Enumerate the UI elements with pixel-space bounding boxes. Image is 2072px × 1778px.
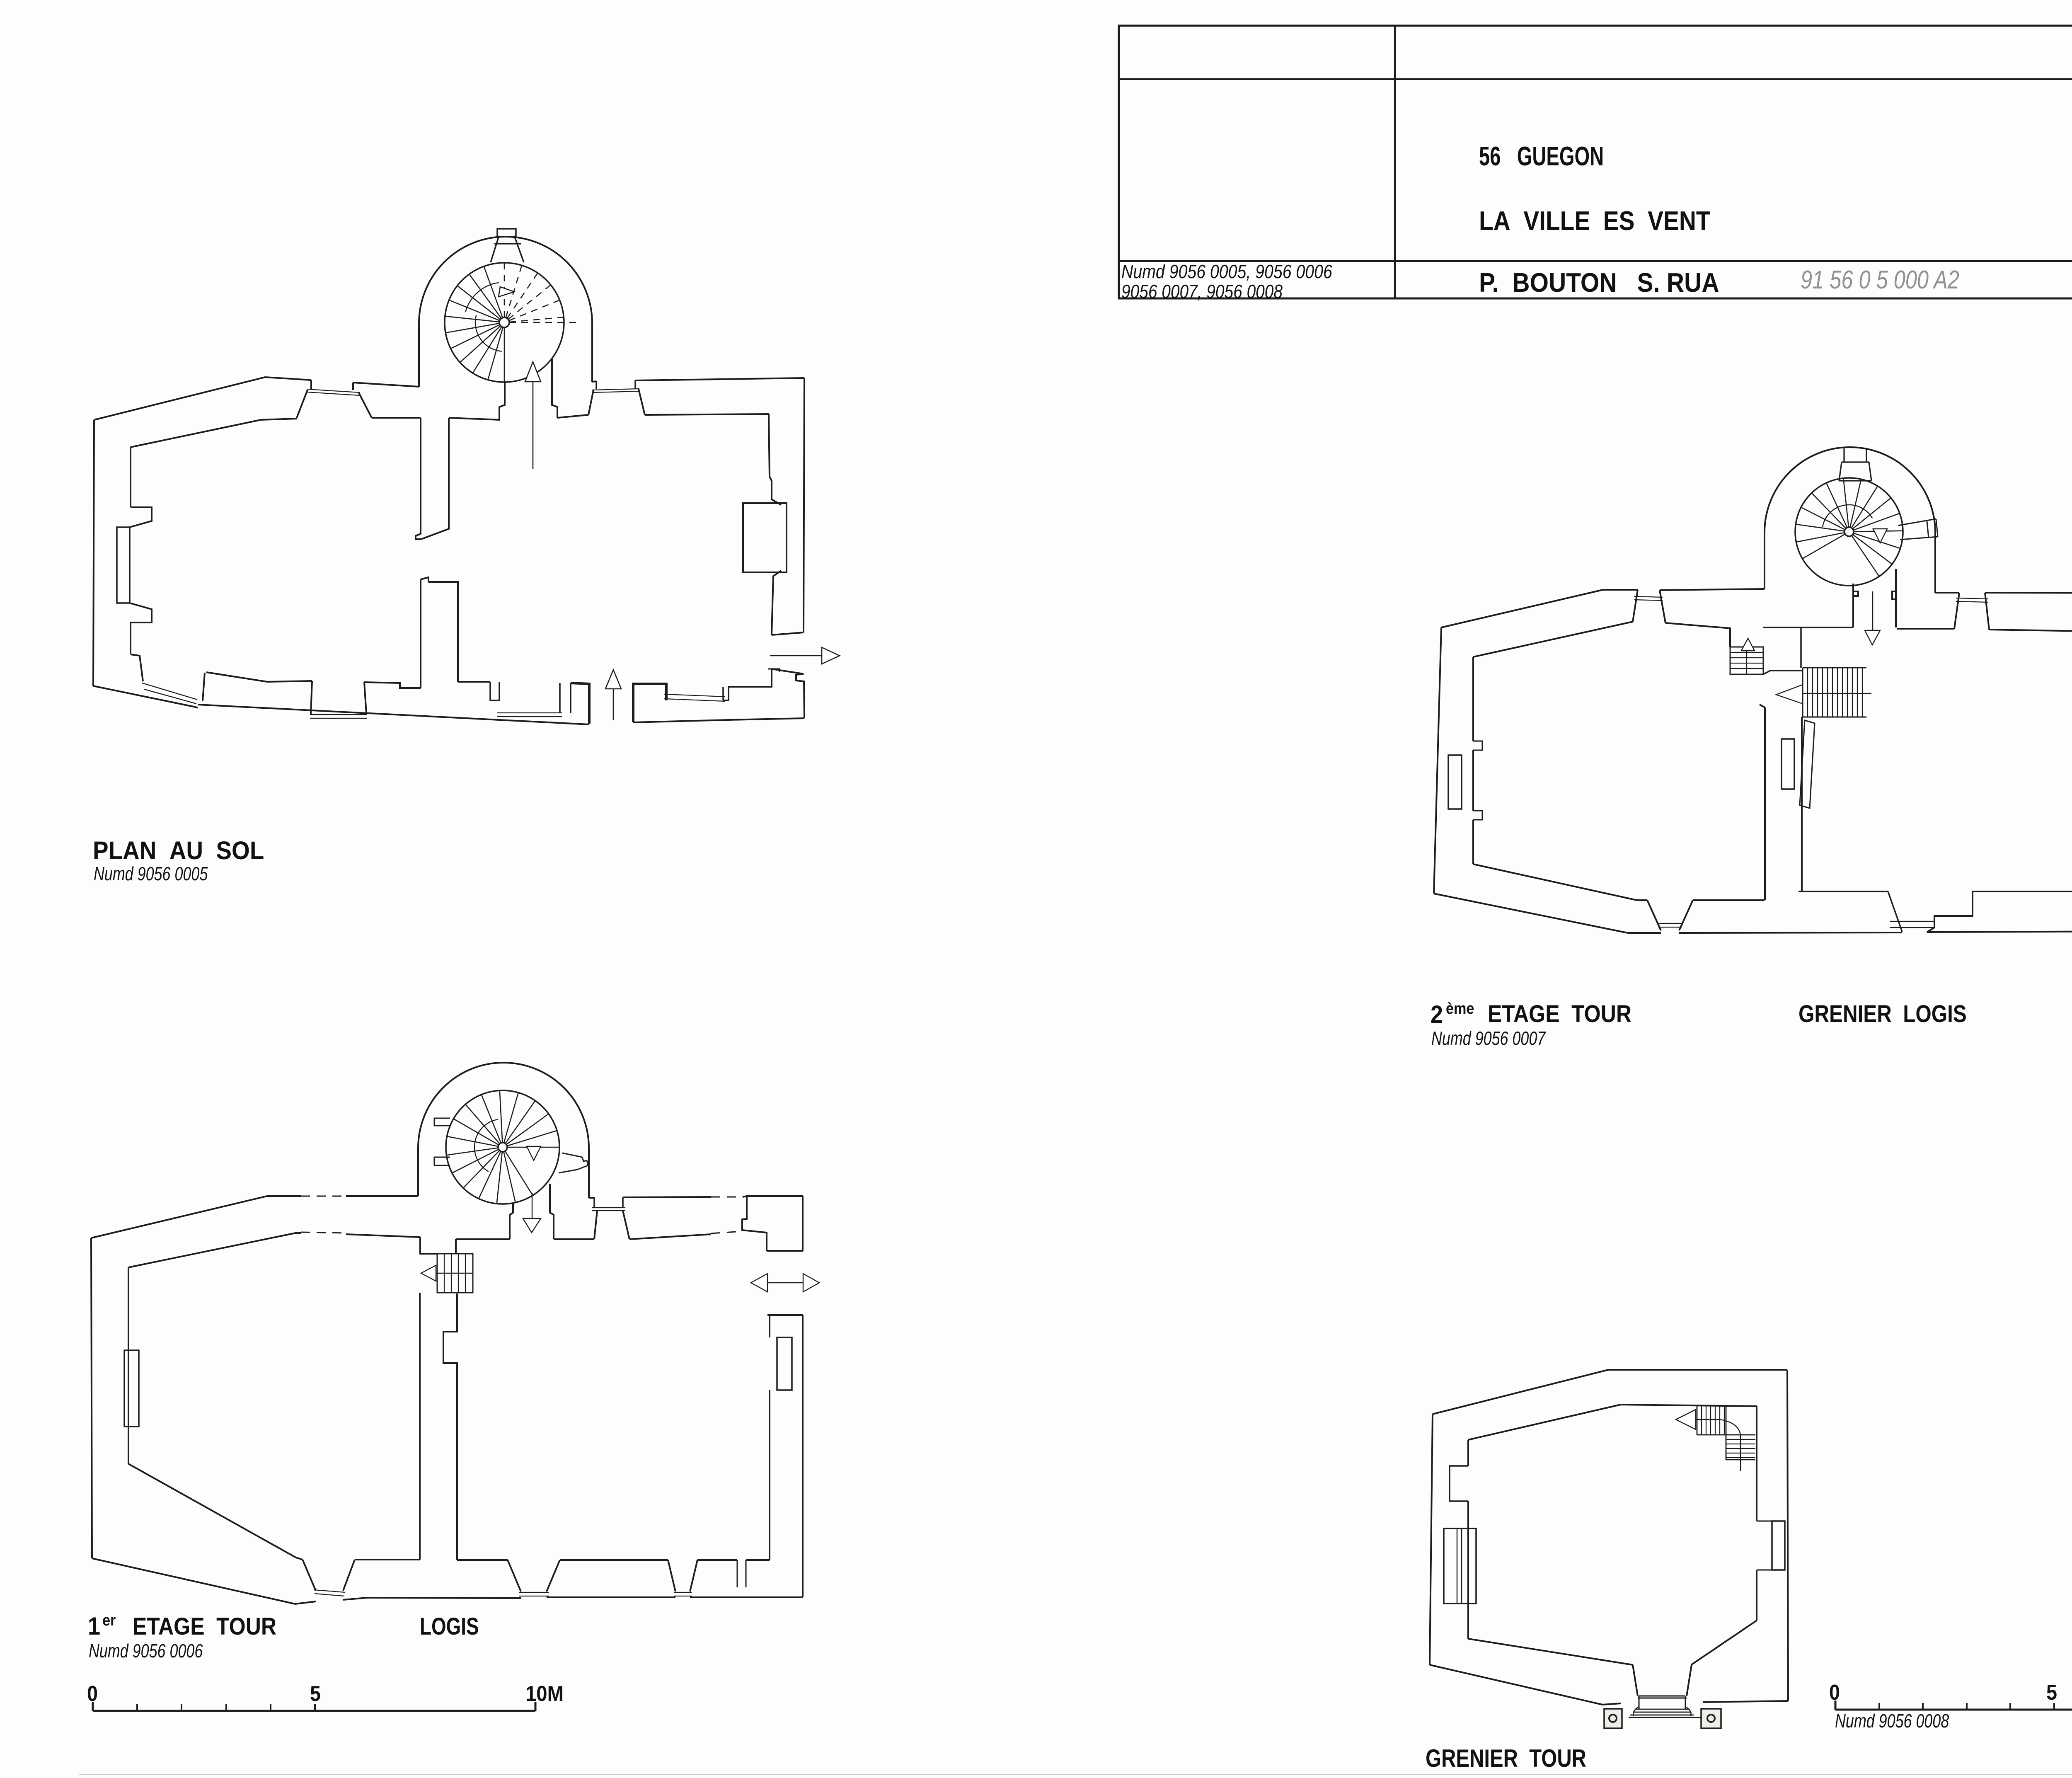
svg-text:5: 5	[2046, 1681, 2057, 1705]
svg-text:56 GUEGON: 56 GUEGON	[1479, 142, 1604, 172]
svg-text:0: 0	[1829, 1681, 1840, 1705]
svg-text:2: 2	[1431, 1000, 1443, 1028]
svg-text:Numd 9056 0007: Numd 9056 0007	[1431, 1028, 1546, 1049]
svg-text:9056 0007, 9056 0008: 9056 0007, 9056 0008	[1121, 281, 1283, 303]
svg-text:Numd 9056 0005, 9056 0006: Numd 9056 0005, 9056 0006	[1121, 261, 1332, 283]
svg-text:Numd 9056 0008: Numd 9056 0008	[1835, 1710, 1949, 1732]
svg-text:P. BOUTON S. RUA: P. BOUTON S. RUA	[1479, 268, 1719, 298]
svg-text:1: 1	[88, 1612, 100, 1640]
svg-text:5: 5	[310, 1682, 321, 1706]
svg-text:91 56 0 5 000 A2: 91 56 0 5 000 A2	[1801, 265, 1959, 294]
svg-text:GRENIER TOUR: GRENIER TOUR	[1426, 1744, 1586, 1772]
svg-text:LA VILLE ES VENT: LA VILLE ES VENT	[1479, 206, 1711, 235]
svg-text:ETAGE TOUR: ETAGE TOUR	[1488, 1000, 1631, 1027]
svg-text:Numd 9056 0005: Numd 9056 0005	[94, 863, 208, 884]
svg-text:ème: ème	[1446, 999, 1474, 1017]
svg-text:GRENIER LOGIS: GRENIER LOGIS	[1798, 1000, 1967, 1027]
svg-text:Numd 9056 0006: Numd 9056 0006	[89, 1640, 203, 1662]
svg-text:LOGIS: LOGIS	[420, 1613, 479, 1640]
svg-text:ETAGE TOUR: ETAGE TOUR	[133, 1613, 276, 1640]
svg-text:er: er	[102, 1611, 116, 1629]
svg-text:PLAN AU SOL: PLAN AU SOL	[93, 837, 264, 865]
svg-text:0: 0	[87, 1682, 98, 1706]
svg-text:10M: 10M	[525, 1681, 564, 1706]
